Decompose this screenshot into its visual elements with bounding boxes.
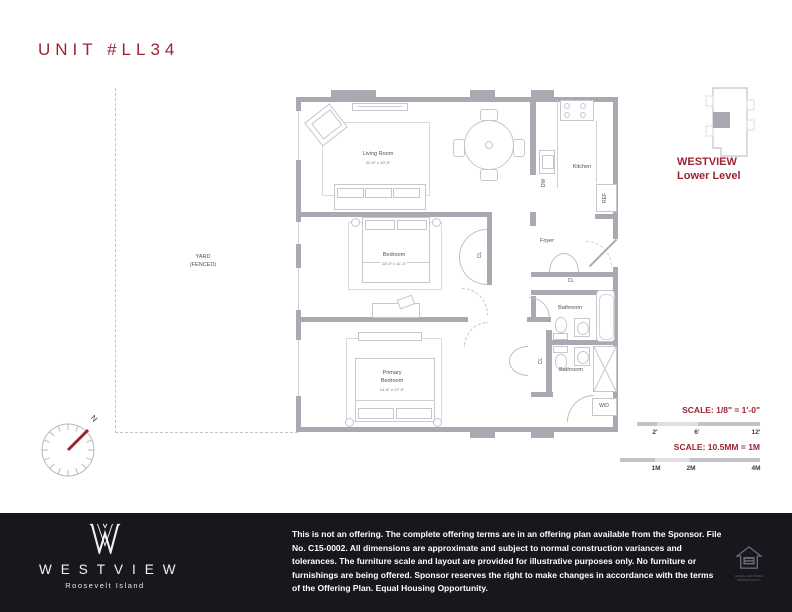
scale-metric-label: SCALE: 10.5MM = 1M (580, 442, 760, 452)
equal-housing-label: EQUAL HOUSING OPPORTUNITY (733, 575, 765, 582)
bedroom-door-icon (462, 288, 488, 315)
scale-tick: 2M (686, 465, 695, 472)
room-label: Primary (381, 370, 404, 378)
brand-block: WESTVIEW Roosevelt Island (30, 522, 180, 590)
wall-segment (531, 432, 554, 438)
burner-icon (580, 112, 586, 118)
shower-icon (593, 346, 617, 392)
yard-label: (FENCED) (188, 262, 218, 270)
wall-segment (487, 212, 492, 285)
closet-door-icon (459, 257, 487, 285)
bathroom-door-icon (529, 297, 550, 318)
room-label: Bathroom (556, 305, 584, 313)
yard-fence-line (115, 432, 298, 433)
wall-segment (470, 90, 495, 97)
scale-bar (655, 458, 690, 462)
counter-edge (557, 100, 558, 188)
wall-segment (470, 432, 495, 438)
vanity-sink-icon (574, 347, 590, 366)
dishwasher-label: DW (541, 179, 547, 187)
refrigerator-label: REF (602, 193, 608, 203)
scale-tick: 2' (652, 429, 657, 436)
console-icon (352, 103, 408, 111)
desk-icon (372, 303, 420, 318)
nightstand-icon (432, 218, 441, 227)
wall-segment (595, 214, 618, 219)
brand-name: WESTVIEW (30, 562, 180, 577)
scale-tick: 4M (751, 465, 760, 472)
nightstand-icon (345, 418, 354, 427)
room-label: Living Room (361, 151, 396, 159)
window-icon (298, 268, 299, 310)
chair-icon (480, 169, 498, 181)
pillow-icon (365, 220, 395, 230)
chair-icon (480, 109, 498, 121)
compass-icon (40, 421, 98, 479)
toilet-icon (555, 317, 567, 333)
pillow-icon (396, 408, 432, 419)
keyplan-title: WESTVIEW Lower Level (677, 156, 741, 184)
nightstand-icon (351, 218, 360, 227)
wall-segment (298, 427, 618, 432)
toilet-icon (553, 346, 568, 353)
yard-fence-line (115, 88, 116, 433)
sofa-cushion-icon (365, 188, 392, 198)
burner-icon (580, 103, 586, 109)
brand-location: Roosevelt Island (30, 581, 180, 590)
washer-dryer-label: W/D (597, 403, 611, 410)
scale-tick: 1M (651, 465, 660, 472)
keyplan-icon (700, 86, 756, 164)
counter-edge (596, 121, 597, 183)
wall-segment (546, 330, 552, 397)
westview-logo-icon (84, 522, 126, 554)
scale-tick: 12' (752, 429, 761, 436)
console-icon (358, 106, 402, 107)
unit-title: UNIT #LL34 (38, 40, 179, 60)
closet-label: CL (566, 278, 576, 285)
wall-segment (531, 90, 554, 97)
closet-label: CL (477, 252, 483, 258)
scale-bar (657, 422, 698, 426)
bathtub-icon (596, 290, 615, 342)
nightstand-icon (433, 418, 442, 427)
sofa-cushion-icon (393, 188, 420, 198)
wall-segment (531, 272, 617, 277)
room-label: Bedroom (379, 378, 405, 386)
toilet-icon (553, 333, 568, 340)
dining-table-icon (485, 141, 493, 149)
room-label: Foyer (538, 238, 556, 246)
dresser-icon (358, 332, 422, 341)
wall-segment (530, 212, 536, 226)
floorplan-page: UNIT #LL34 Living Roo (0, 0, 792, 612)
wall-segment (530, 97, 536, 175)
room-label: Kitchen (571, 164, 593, 172)
pillow-icon (397, 220, 427, 230)
wall-segment (296, 310, 301, 340)
sofa-cushion-icon (337, 188, 364, 198)
vanity-sink-icon (574, 318, 590, 337)
room-dims: 14'-0" x 11'-4" (381, 261, 407, 266)
window-icon (298, 222, 299, 244)
closet-door-icon (509, 361, 528, 376)
scale-bar (690, 458, 760, 462)
blanket-line (355, 400, 435, 401)
closet-door-icon (509, 346, 528, 361)
room-label: Bedroom (381, 252, 407, 260)
footer: WESTVIEW Roosevelt Island This is not an… (0, 513, 792, 612)
window-icon (298, 111, 299, 160)
chair-icon (513, 139, 525, 157)
sink-icon (539, 150, 555, 174)
keyplan-unit-highlight (713, 112, 730, 128)
closet-door-icon (564, 253, 579, 272)
legal-disclaimer: This is not an offering. The complete of… (292, 528, 722, 596)
equal-housing-block: EQUAL HOUSING OPPORTUNITY (733, 546, 765, 582)
room-label: Bathroom (557, 367, 585, 375)
closet-door-icon (549, 253, 564, 272)
scale-bar (698, 422, 760, 426)
chair-icon (453, 139, 465, 157)
room-dims: 14'-6" x 17'-0" (379, 387, 406, 392)
wall-segment (296, 244, 301, 268)
scale-bar (620, 458, 655, 462)
keyplan-level: Lower Level (677, 170, 741, 184)
wall-segment (296, 97, 301, 111)
wall-segment (331, 90, 376, 97)
primary-door-icon (464, 322, 488, 347)
burner-icon (564, 103, 570, 109)
burner-icon (564, 112, 570, 118)
wall-segment (531, 392, 553, 397)
closet-label: CL (538, 358, 544, 364)
wall-segment (296, 396, 301, 432)
yard-label: YARD (194, 254, 213, 262)
window-icon (298, 340, 299, 396)
keyplan-building: WESTVIEW (677, 156, 741, 170)
equal-housing-icon (736, 546, 762, 570)
scale-tick: 6' (694, 429, 699, 436)
scale-bar (637, 422, 657, 426)
room-dims: 21'-6" x 13'-3" (365, 160, 392, 165)
pillow-icon (358, 408, 394, 419)
